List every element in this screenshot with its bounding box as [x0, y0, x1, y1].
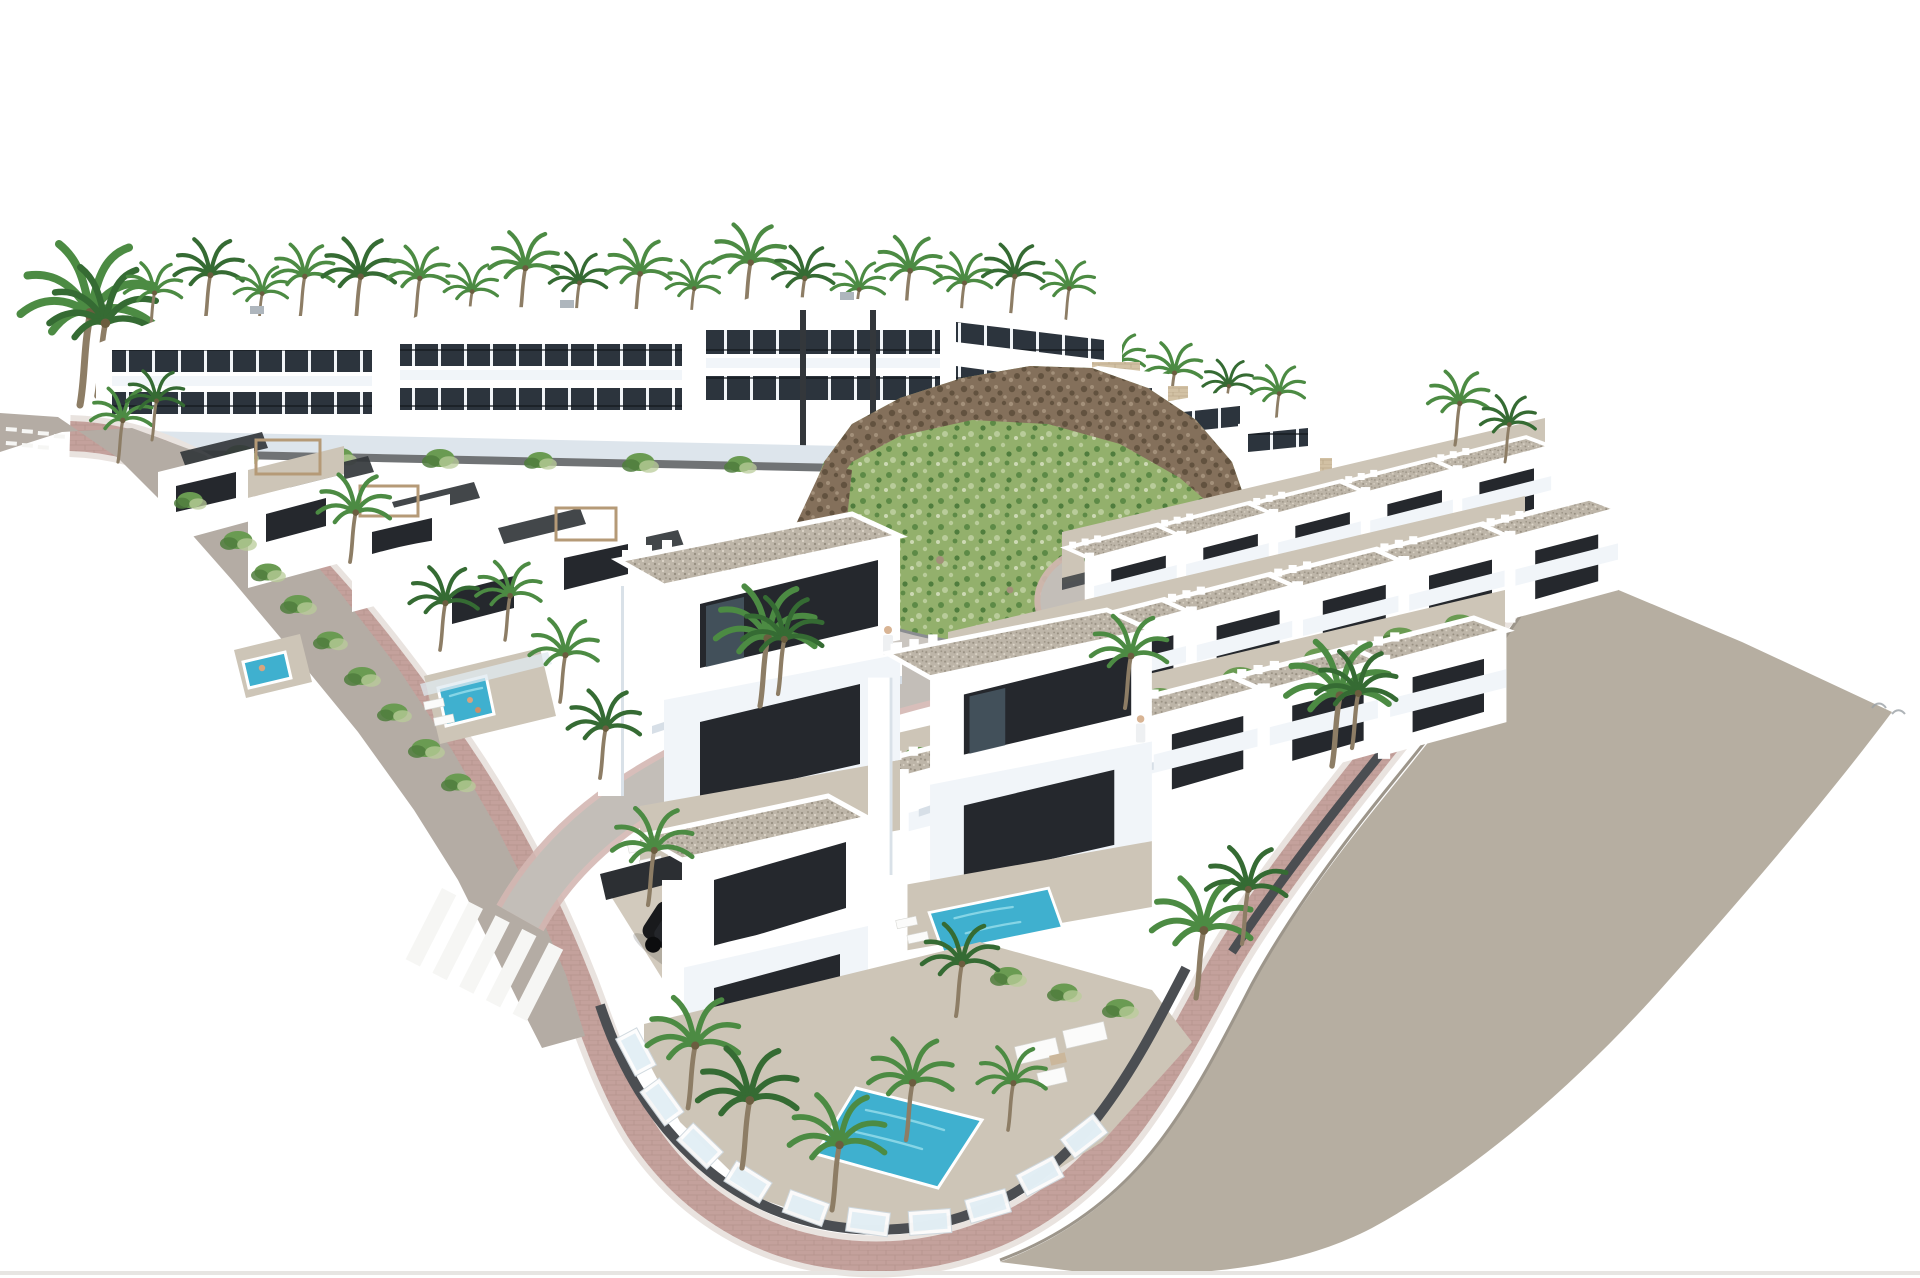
window-ribbon	[706, 330, 940, 354]
window-ribbon	[400, 344, 682, 366]
window-ribbon	[112, 350, 372, 372]
person	[259, 665, 265, 671]
rooftop-ac-unit	[250, 306, 264, 314]
bottom-edge-strip	[0, 1271, 1920, 1275]
balcony-band	[706, 358, 940, 368]
window-ribbon	[400, 388, 682, 410]
rooftop-ac-unit	[840, 292, 854, 300]
rock	[1007, 587, 1014, 594]
render-canvas: Aerial 3D visualisation of a white moder…	[0, 0, 1920, 1278]
rooftop-ac-unit	[560, 300, 574, 308]
rock	[936, 556, 944, 564]
person	[475, 707, 481, 713]
person	[467, 697, 473, 703]
window-ribbon	[706, 376, 940, 400]
divider-wall	[800, 310, 806, 448]
balcony-band	[400, 370, 682, 380]
development-render: Aerial 3D visualisation of a white moder…	[0, 0, 1920, 1278]
